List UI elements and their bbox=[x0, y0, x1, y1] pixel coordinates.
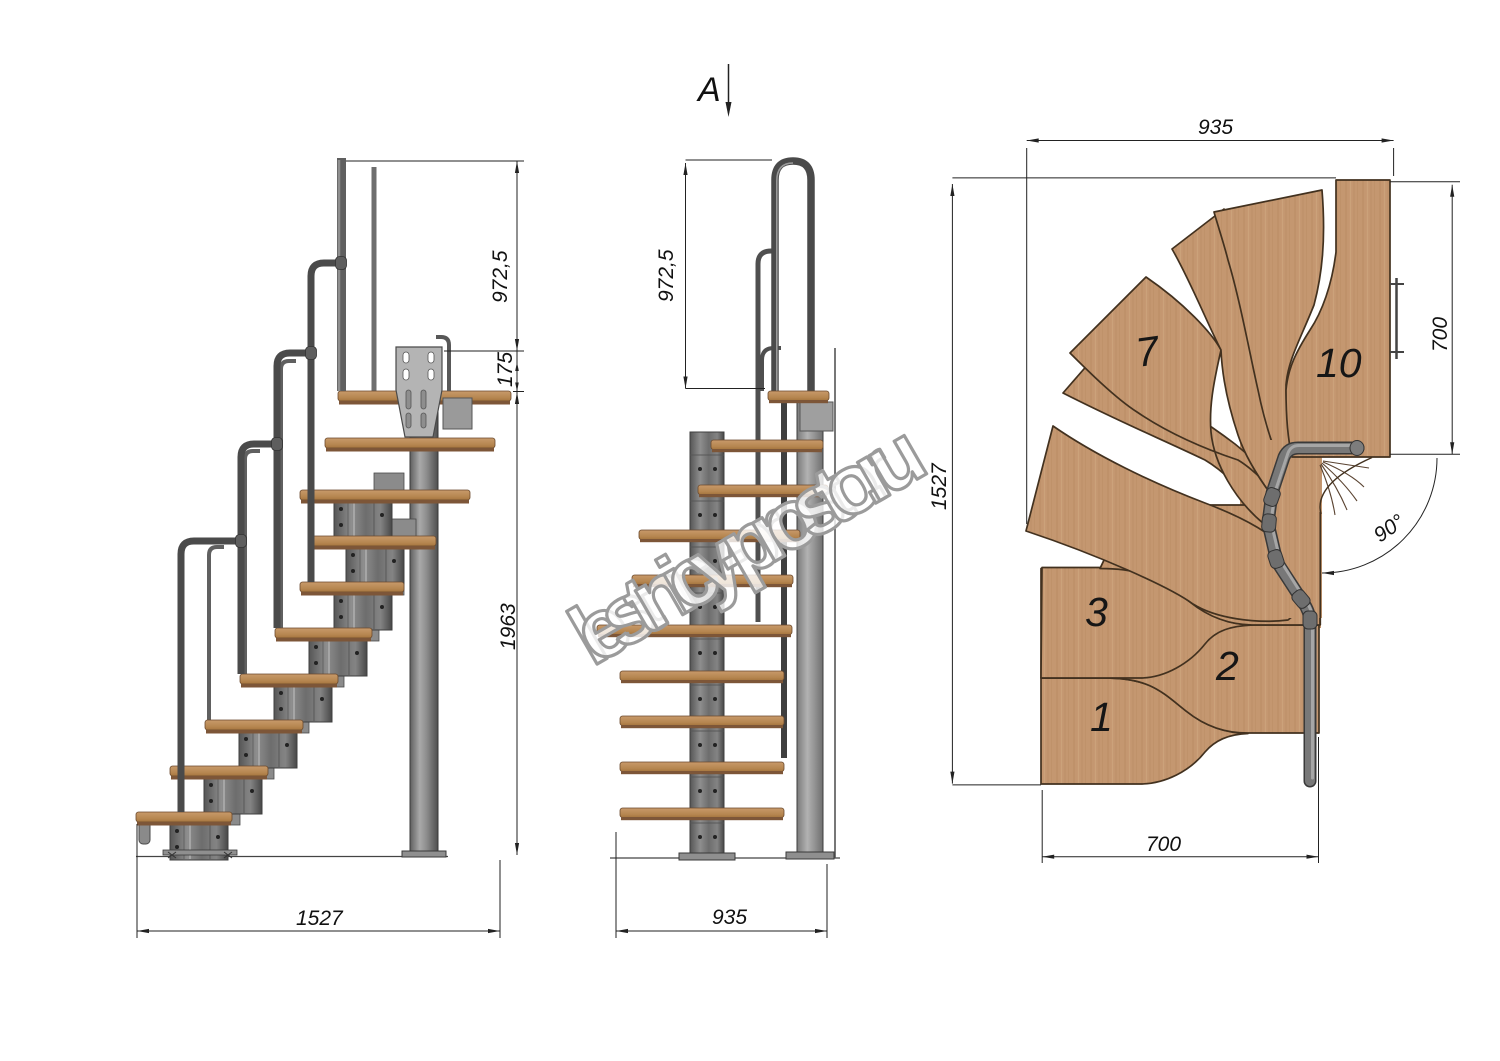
svg-text:1963: 1963 bbox=[497, 603, 520, 650]
svg-text:700: 700 bbox=[1146, 833, 1181, 856]
svg-text:935: 935 bbox=[712, 906, 747, 929]
svg-text:2: 2 bbox=[1215, 643, 1239, 689]
svg-text:10: 10 bbox=[1316, 340, 1362, 386]
svg-text:175: 175 bbox=[494, 352, 517, 387]
svg-text:1527: 1527 bbox=[296, 907, 344, 930]
svg-text:1: 1 bbox=[1090, 694, 1113, 740]
svg-text:1527: 1527 bbox=[928, 462, 951, 510]
svg-text:700: 700 bbox=[1429, 317, 1452, 352]
svg-text:3: 3 bbox=[1085, 589, 1108, 635]
svg-text:A: A bbox=[696, 71, 721, 109]
svg-text:935: 935 bbox=[1198, 116, 1233, 139]
svg-text:972,5: 972,5 bbox=[489, 250, 512, 303]
svg-text:972,5: 972,5 bbox=[655, 249, 678, 302]
